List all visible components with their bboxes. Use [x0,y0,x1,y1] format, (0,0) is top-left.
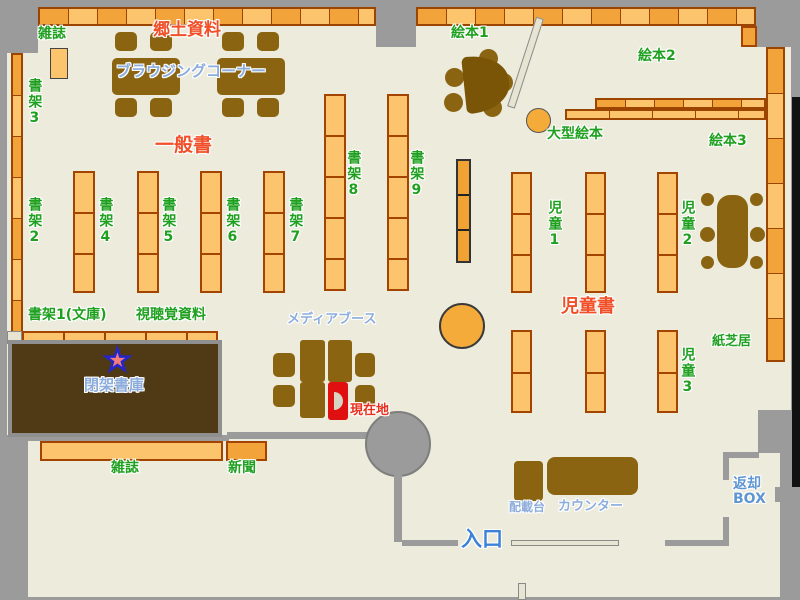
shelf-6-stack [200,171,222,293]
media-chair [355,353,375,377]
wall-right-bottom-column [780,453,791,600]
counter-desk [547,457,638,495]
entrance-door-post [518,583,526,600]
chair-dot [750,256,763,269]
children-3-stack [657,330,678,413]
pillar-top [376,0,416,47]
wall-shelf-top-right-run [416,7,756,26]
shelf-9-stack [387,94,409,291]
magazine-shelf-bottom [40,441,223,461]
children-low-stack-a [511,330,532,413]
label-counter: カウンター [558,500,623,514]
chair-dot [701,256,714,269]
label-large-picture-books: 大型絵本 [547,127,603,142]
label-general-books: 一般書 [155,135,212,156]
media-table [300,340,325,382]
chair-dot [445,68,464,87]
browsing-chair [115,32,137,51]
label-children-2: 児童2 [679,200,694,250]
media-table [300,382,325,418]
wall-shelf-right-run [766,47,785,362]
picture-book-shelf-row-lower [565,109,766,120]
entrance-gate [511,540,619,546]
wall-returnbox-top [758,410,791,453]
center-low-stack [456,159,471,263]
label-children-3: 児童3 [679,347,694,397]
browsing-chair [257,98,279,117]
label-newspapers: 新聞 [228,461,256,476]
diagonal-shelf [507,17,544,109]
newspaper-shelf [226,441,267,461]
wall-returnbox-bottom-v [723,517,729,546]
children-2-table [717,195,748,268]
children-1-stack-a [511,172,532,293]
chair-dot [701,193,714,206]
label-return-box: 返却 BOX [733,477,766,508]
media-chair [273,353,295,377]
browsing-chair [222,98,244,117]
label-shelf-4: 書架4 [97,197,112,247]
shelf-5-stack [137,171,159,293]
browsing-chair [115,98,137,117]
chair-dot [444,93,463,112]
children-low-stack-b [585,330,606,413]
label-shelf-1-bunko: 書架1(文庫) [28,308,107,323]
wall-entrance-left [402,540,458,546]
label-shelf-2: 書架2 [26,197,41,247]
label-magazines-bottom: 雑誌 [111,461,139,476]
round-shelf [439,303,485,349]
wall-shelf-left-run [11,53,23,335]
chair-dot [750,193,763,206]
chair-dot [700,227,715,242]
label-media-booth: メディアブース [287,313,376,327]
children-1-stack-b [585,172,606,293]
picture-book-1-table [461,53,512,114]
wall-bottom-left-column [0,438,28,600]
wall-entrance-right [665,540,728,546]
window-right-edge [792,97,800,487]
label-picture-books-2: 絵本2 [638,49,676,64]
label-local-materials: 郷土資料 [153,21,221,40]
shelf-4-stack [73,171,95,293]
wall-below-pillar [394,467,402,542]
label-current-location: 現在地 [350,404,389,418]
wall-top-left-corner [0,0,38,53]
label-magazines-top: 雑誌 [38,27,66,42]
label-sorting-table: 配載台 [509,501,545,514]
chair-dot [750,227,765,242]
label-picture-books-3: 絵本3 [709,134,747,149]
browsing-chair [150,98,172,117]
label-shelf-7: 書架7 [287,197,302,247]
label-audio-visual: 視聴覚資料 [136,308,206,323]
current-location-star-icon: ★ [104,346,131,376]
label-shelf-9: 書架9 [408,150,423,200]
label-children-1: 児童1 [546,200,561,250]
sorting-table [514,461,543,501]
library-floor-map: 雑誌 郷土資料 ブラウジングコーナー 一般書 書架3 書架2 書架4 書架5 書… [0,0,800,600]
wall-top-right-corner [756,0,792,47]
label-browsing-corner: ブラウジングコーナー [116,63,266,80]
label-entrance: 入口 [461,528,503,551]
label-shelf-5: 書架5 [160,197,175,247]
browsing-chair [222,32,244,51]
children-2-stack [657,172,678,293]
label-picture-books-1: 絵本1 [451,26,489,41]
picture-book-shelf-row-upper [595,98,766,109]
label-closed-stacks: 閉架書庫 [84,377,144,394]
label-shelf-3: 書架3 [26,78,41,128]
shelf-7-stack [263,171,285,293]
label-shelf-8: 書架8 [345,150,360,200]
media-table [328,340,352,382]
magazine-shelf-top [50,48,68,79]
label-children-books: 児童書 [561,297,615,317]
label-kamishibai: 紙芝居 [712,335,751,349]
wall-mid-horizontal [227,432,369,439]
browsing-chair [257,32,279,51]
label-shelf-6: 書架6 [224,197,239,247]
media-chair [273,385,295,407]
shelf-8-stack [324,94,346,291]
wall-shelf-top-corner [741,26,757,47]
wall-returnbox-v [723,452,729,480]
